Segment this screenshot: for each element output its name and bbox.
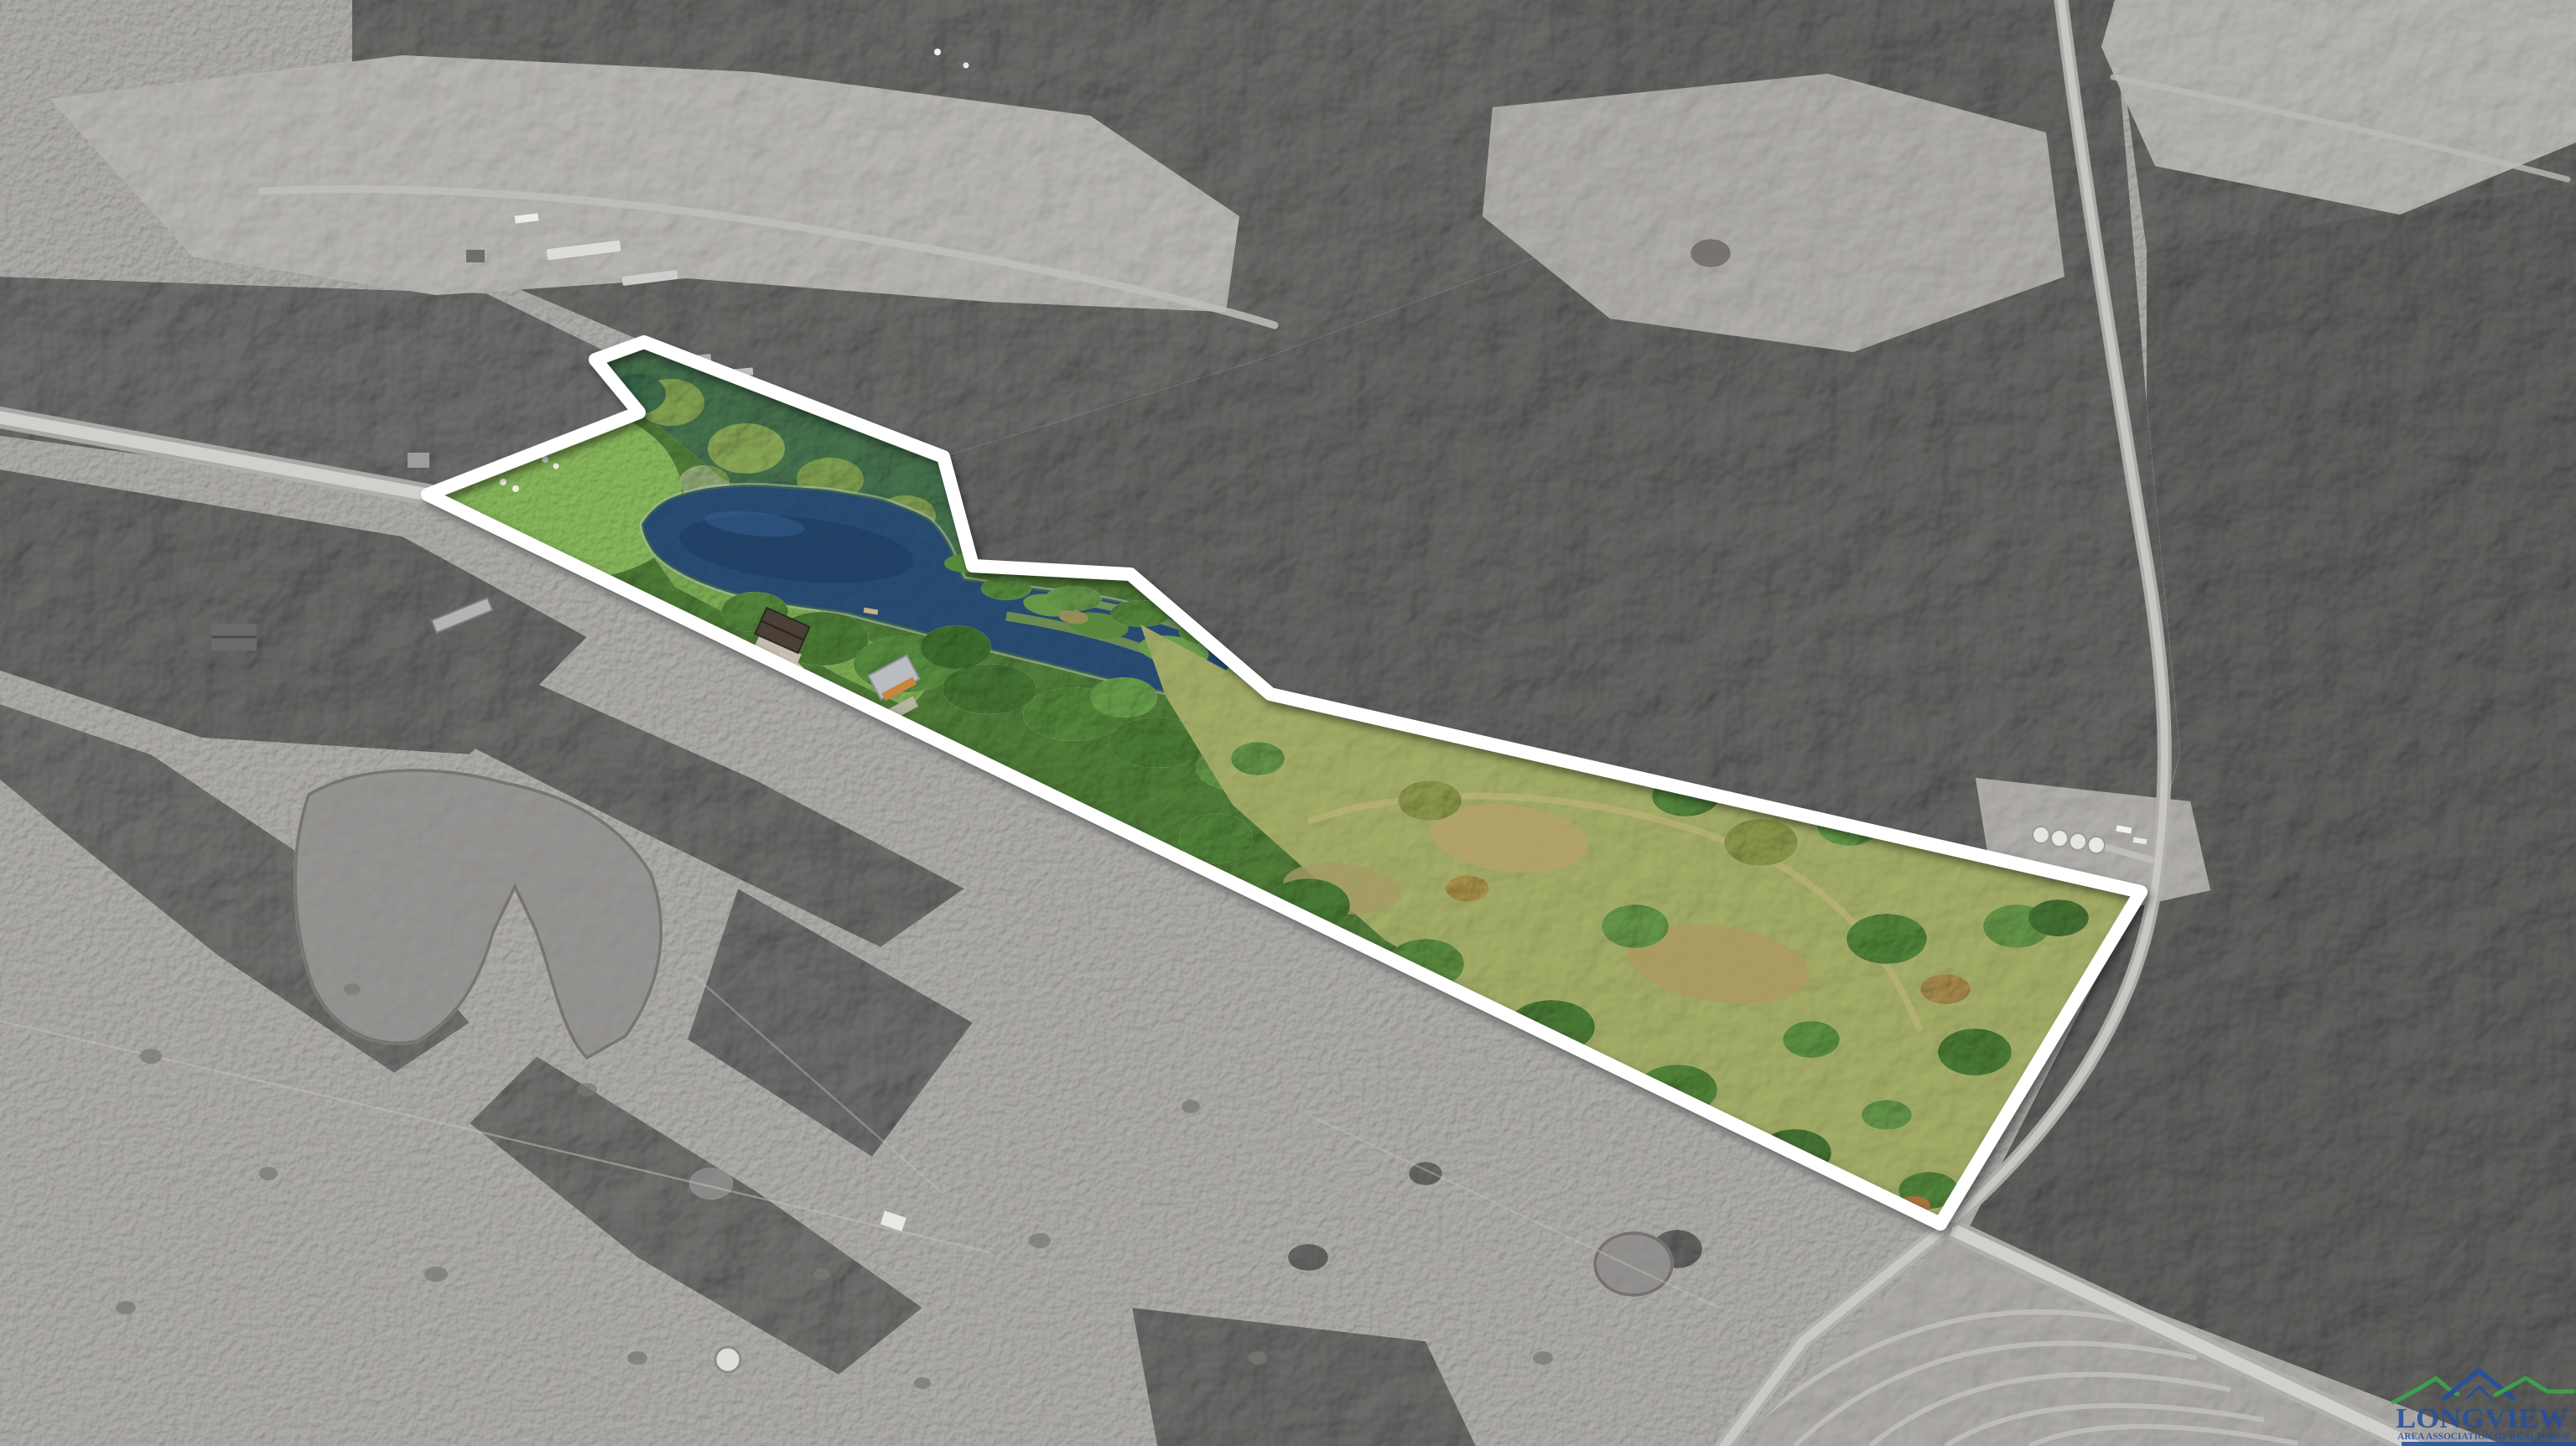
forest-pond (1690, 239, 1731, 267)
brand-underline (2402, 1442, 2576, 1446)
water-tank (715, 1347, 740, 1372)
round-pond (1595, 1233, 1672, 1295)
brand-tagline: AREA ASSOCIATION OF REALTORS® (2397, 1430, 2568, 1442)
aerial-photo-canvas: LONGVIEW AREA ASSOCIATION OF REALTORS® (0, 0, 2576, 1446)
aerial-photo: LONGVIEW AREA ASSOCIATION OF REALTORS® (0, 0, 2576, 1446)
